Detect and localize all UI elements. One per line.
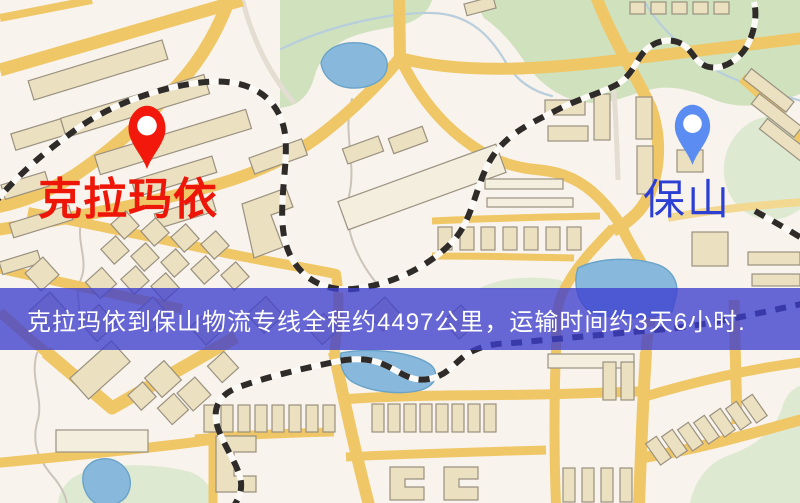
route-info-text: 克拉玛依到保山物流专线全程约4497公里，运输时间约3天6小时. xyxy=(27,302,746,337)
route-info-banner: 克拉玛依到保山物流专线全程约4497公里，运输时间约3天6小时. xyxy=(0,288,800,350)
origin-pin-icon[interactable] xyxy=(121,101,173,171)
map-view: 克拉玛依 保山 克拉玛依到保山物流专线全程约4497公里，运输时间约3天6小时. xyxy=(0,0,800,503)
destination-pin-icon[interactable] xyxy=(668,99,717,168)
origin-label: 克拉玛依 xyxy=(38,178,218,222)
map-background xyxy=(0,0,800,503)
destination-label: 保山 xyxy=(643,179,731,221)
